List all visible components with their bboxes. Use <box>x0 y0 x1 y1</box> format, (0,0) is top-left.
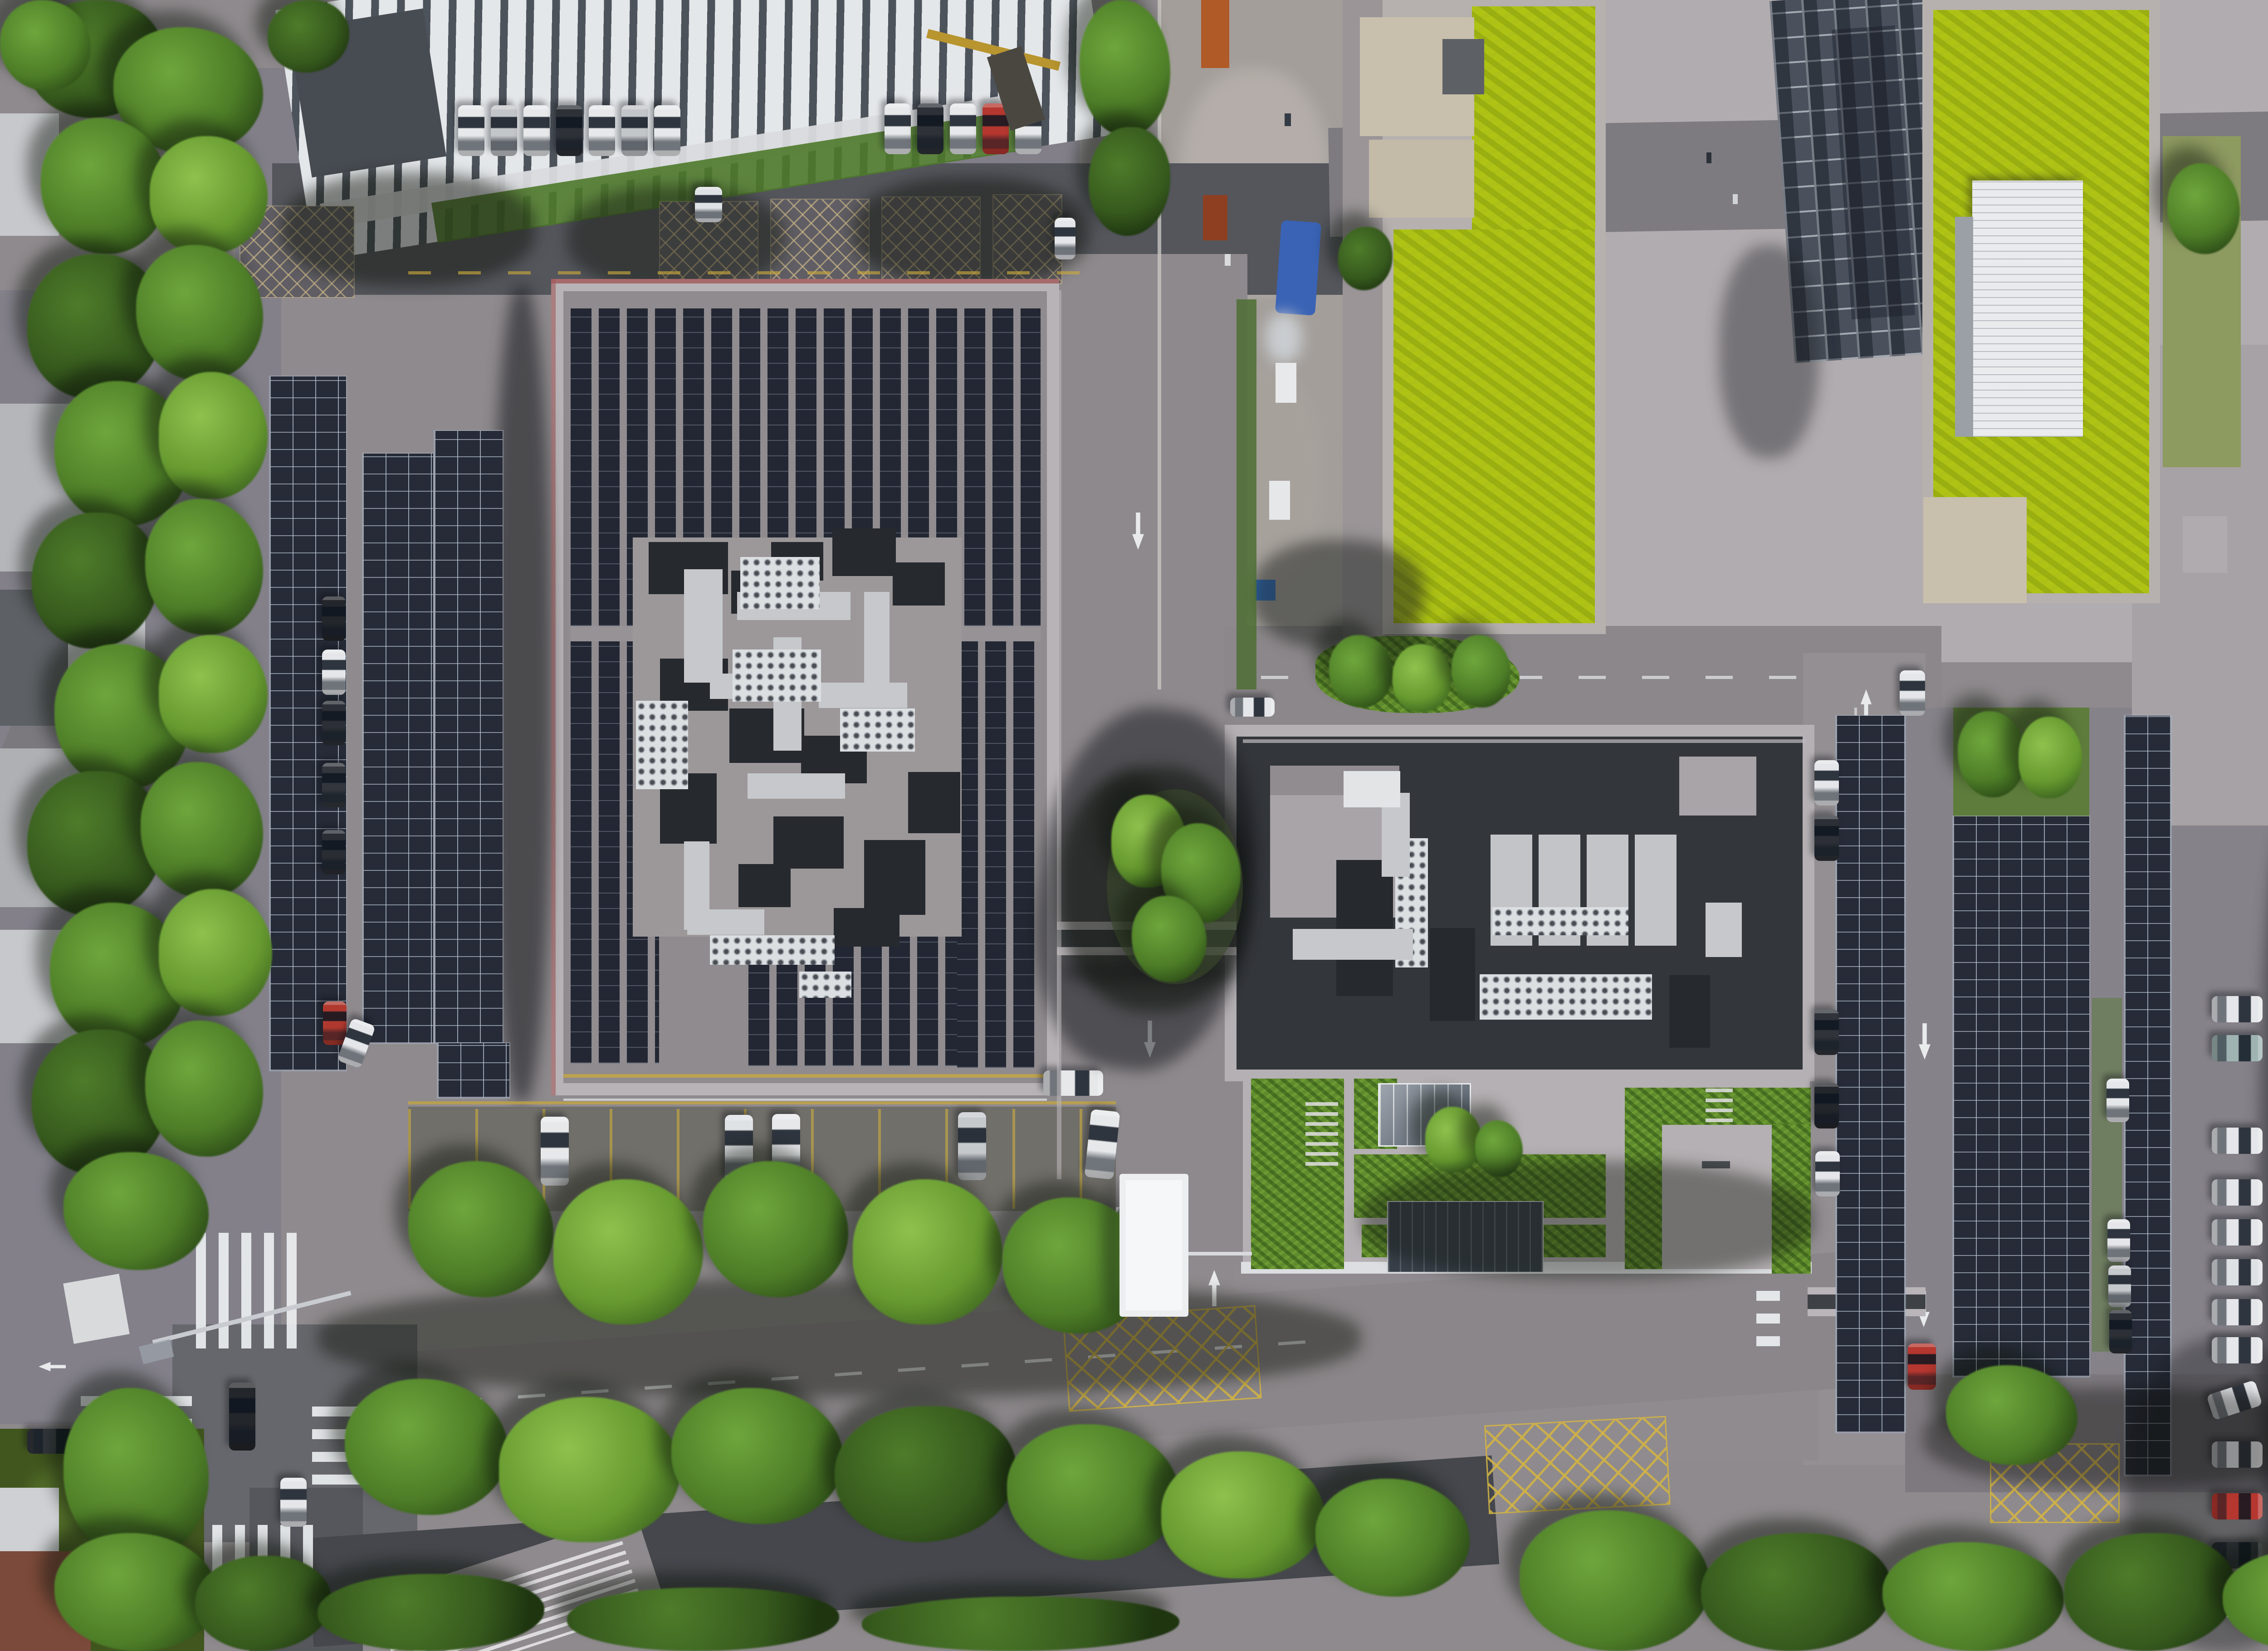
lot-car-1 <box>458 105 484 156</box>
tower-shadow <box>1719 245 1819 458</box>
lane-car-3 <box>322 701 346 745</box>
lot-car-9 <box>917 103 943 154</box>
wlane-car-2 <box>1814 816 1839 861</box>
rlane-car-3 <box>2108 1265 2131 1307</box>
hvac-duct-6 <box>864 592 890 689</box>
lot-car-3 <box>523 105 550 156</box>
yellow-box-mid <box>1486 1417 1669 1513</box>
tree-l4 <box>150 136 268 254</box>
rlane-car-4 <box>2109 1310 2132 1353</box>
center-road-sidewalk <box>1057 290 1061 1179</box>
lane-car-4 <box>322 763 346 807</box>
lane-car-5 <box>322 830 346 874</box>
east-dark-2 <box>1430 928 1475 1021</box>
hvac-duct-5 <box>819 683 907 708</box>
east-ahu-4 <box>1635 835 1677 946</box>
hvac-dark-12 <box>908 772 960 833</box>
east-white-unit <box>1344 771 1400 807</box>
col-car-5 <box>2212 1219 2263 1246</box>
pedestrian-1 <box>1706 152 1711 163</box>
col-car-1 <box>2212 996 2263 1022</box>
carport-c-ext <box>438 1043 509 1098</box>
carport-tree-2 <box>2019 717 2082 798</box>
mid-road-sidewalk <box>1243 739 1805 743</box>
lot-car-6 <box>621 105 648 156</box>
hvac-fans-3 <box>840 708 915 752</box>
tree-row-2 <box>553 1179 703 1324</box>
east-fan-row <box>1480 974 1652 1020</box>
greenroof2-box <box>1923 497 2027 603</box>
hvac-fans-2 <box>733 650 821 702</box>
main-yellow-line <box>563 1074 1047 1078</box>
carport-r1 <box>1836 716 1905 1432</box>
wlane-car-4 <box>1814 1083 1839 1128</box>
car-mid-road <box>1230 698 1275 717</box>
hvac-fans-6 <box>799 972 851 998</box>
main-railing <box>563 1099 1047 1101</box>
col-car-11 <box>2212 1493 2263 1519</box>
crate-1 <box>1276 363 1296 403</box>
center-road-hedge <box>1237 299 1256 689</box>
suv-south <box>229 1382 255 1451</box>
container-red <box>1203 195 1227 240</box>
hvac-fans-5 <box>710 935 835 965</box>
col-car-7 <box>2212 1299 2263 1325</box>
col-car-3 <box>2212 1128 2263 1154</box>
hvac-duct-1 <box>684 569 723 683</box>
lot-car-7 <box>654 105 680 156</box>
aerial-campus-photo <box>0 0 2268 1651</box>
lot-car-8 <box>885 103 911 154</box>
lot-car-5 <box>589 105 615 156</box>
east-penthouse-2 <box>1679 757 1756 816</box>
road-shadow-3 <box>853 177 1089 286</box>
crosswalk-right-road <box>1756 1278 1780 1346</box>
yellow-dashes-top <box>408 271 1089 274</box>
worker-1 <box>1285 113 1291 126</box>
tree-l16 <box>159 889 272 1016</box>
col-car-8 <box>2212 1337 2263 1363</box>
rlane-car-2 <box>2107 1219 2130 1262</box>
solar-col-right <box>957 641 1041 1068</box>
greenroof1-box2 <box>1369 140 1474 218</box>
wlane-car-5 <box>1815 1151 1840 1197</box>
carport-r3 <box>2125 716 2171 1475</box>
garden-steps-1 <box>1305 1102 1338 1168</box>
lot-car-4 <box>556 105 582 156</box>
wlane-car-3 <box>1814 1010 1839 1055</box>
carport-r2 <box>1953 816 2089 1377</box>
white-car-right-road <box>1900 670 1925 716</box>
carport-b <box>363 454 433 1043</box>
treeline-shadow-garden <box>1361 1161 1814 1279</box>
median-tree-2 <box>1393 644 1452 712</box>
tree-l12 <box>159 635 268 753</box>
foil-pile <box>1266 313 1302 363</box>
car-top-road-2 <box>1055 218 1075 259</box>
hvac-dark-13 <box>738 864 791 907</box>
dark-mound <box>1252 540 1424 649</box>
car-south-white <box>280 1478 307 1527</box>
carport-c <box>435 431 503 1043</box>
hvac-fans-1 <box>740 557 820 609</box>
lot-car-10 <box>950 103 976 154</box>
parapet-red-left <box>551 279 556 1095</box>
strip-car-1 <box>541 1117 569 1186</box>
east-duct-3 <box>1706 903 1742 957</box>
col-car-4 <box>2212 1179 2263 1206</box>
hvac-dark-14 <box>834 908 899 947</box>
red-car-carport <box>1908 1343 1936 1390</box>
hvac-duct-9 <box>687 909 764 935</box>
gate-barrier-arm <box>1188 1252 1252 1255</box>
hvac-duct-7 <box>748 773 845 799</box>
col-car-6 <box>2212 1259 2263 1285</box>
lane-car-red <box>323 1001 347 1045</box>
hvac-fans-4 <box>636 701 688 789</box>
blue-tarp <box>1275 220 1321 316</box>
greenroof2-pent-side <box>1955 217 1973 437</box>
parapet-red-top <box>551 279 1059 283</box>
strip-car-4 <box>958 1112 986 1180</box>
east-dark-3 <box>1669 975 1710 1048</box>
bus-shelter <box>63 1274 130 1344</box>
lane-car-1 <box>322 596 346 641</box>
gate-canopy-stripe <box>1126 1180 1182 1310</box>
greenroof1-lower <box>1393 230 1595 623</box>
tree-belt-2 <box>499 1397 680 1542</box>
garden-tree-1 <box>1425 1107 1482 1172</box>
wlane-car-1 <box>1814 760 1839 806</box>
greenroof1-box-dark <box>1442 39 1484 94</box>
container-orange <box>1201 0 1229 68</box>
lot-car-2 <box>491 105 517 156</box>
tree-belt-6 <box>1161 1451 1325 1578</box>
worker-2 <box>1225 254 1231 266</box>
greenroof1-upper <box>1472 6 1595 230</box>
col-car-2 <box>2212 1035 2263 1061</box>
parking-strip-yellow <box>408 1101 1116 1104</box>
shed-7 <box>0 1488 59 1556</box>
hvac-dark-4 <box>832 528 896 576</box>
hvac-dark-5 <box>893 562 945 606</box>
tree-row-4 <box>853 1179 1002 1324</box>
rlane-car-1 <box>2107 1079 2129 1122</box>
crate-2 <box>1269 481 1290 520</box>
garden-steps-2 <box>1706 1089 1733 1125</box>
east-ahu-fans <box>1492 907 1628 935</box>
car-top-road-1 <box>695 187 722 222</box>
hvac-dark-10 <box>773 816 844 869</box>
plaza-shed <box>2183 516 2227 573</box>
tree-l8 <box>159 372 268 499</box>
gate-canopy-shadow <box>1103 1179 1121 1315</box>
road-shadow-1 <box>281 172 535 286</box>
lane-car-2 <box>322 650 346 695</box>
road-shadow-2 <box>567 186 785 290</box>
hvac-dark-11 <box>864 840 925 915</box>
east-dark-1 <box>1336 860 1393 996</box>
crosswalk-n <box>196 1233 300 1348</box>
greenroof2-penthouse <box>1972 181 2083 437</box>
pedestrian-2 <box>1733 194 1738 204</box>
car-road-gate <box>1043 1070 1103 1096</box>
east-duct-1 <box>1293 929 1413 960</box>
